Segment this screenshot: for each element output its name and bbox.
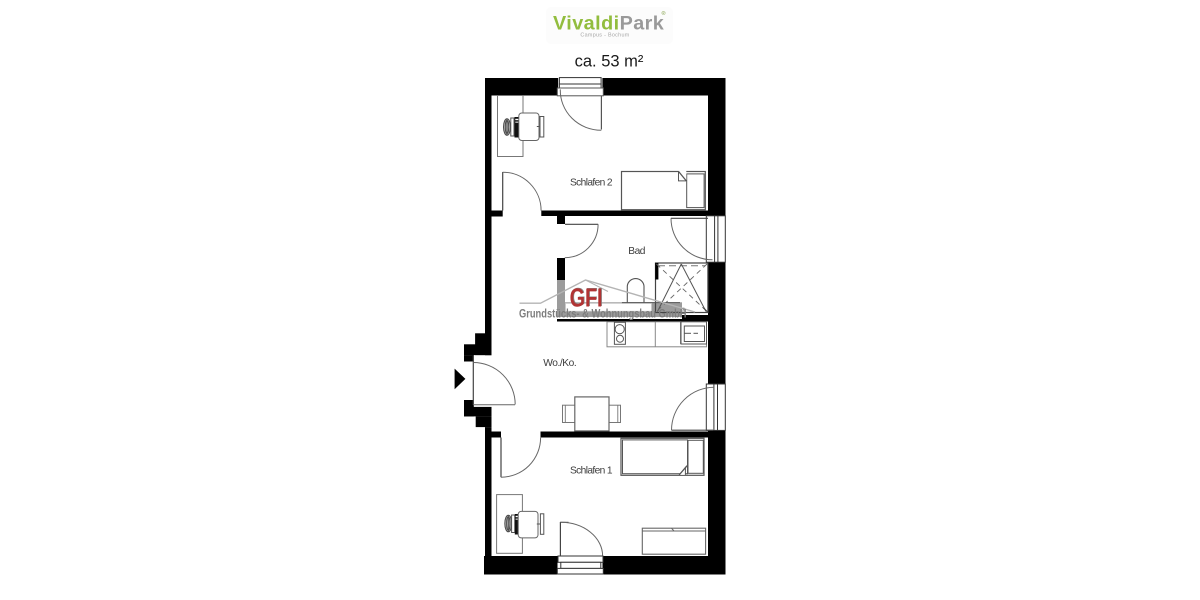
svg-text:Grundstücks- & Wohnungsbau Gmb: Grundstücks- & Wohnungsbau GmbH [519, 308, 686, 321]
svg-text:ca. 53 m²: ca. 53 m² [575, 53, 644, 71]
svg-text:Schlafen 1: Schlafen 1 [570, 466, 613, 477]
svg-text:VivaldiPark: VivaldiPark [553, 13, 665, 35]
svg-text:Bad: Bad [628, 246, 645, 257]
svg-text:Campus - Bochum: Campus - Bochum [580, 33, 629, 39]
svg-text:Wo./Ko.: Wo./Ko. [543, 358, 576, 369]
svg-text:®: ® [682, 306, 686, 314]
svg-text:Schlafen 2: Schlafen 2 [570, 178, 613, 189]
svg-text:®: ® [662, 10, 666, 17]
